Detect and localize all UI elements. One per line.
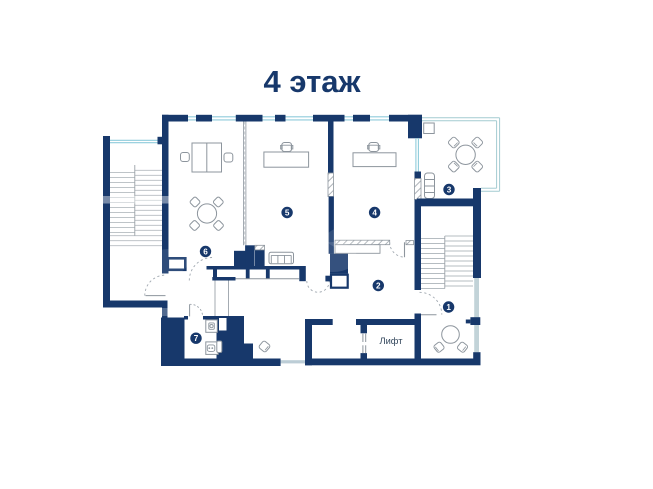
svg-text:1: 1 xyxy=(446,303,451,312)
svg-text:Лифт: Лифт xyxy=(380,336,404,346)
svg-text:6: 6 xyxy=(203,247,208,256)
svg-text:2: 2 xyxy=(376,281,381,290)
svg-text:4 этаж: 4 этаж xyxy=(264,64,362,99)
svg-text:4: 4 xyxy=(372,208,377,217)
svg-text:5: 5 xyxy=(285,208,290,217)
svg-text:3: 3 xyxy=(447,185,452,194)
svg-text:7: 7 xyxy=(194,334,199,343)
